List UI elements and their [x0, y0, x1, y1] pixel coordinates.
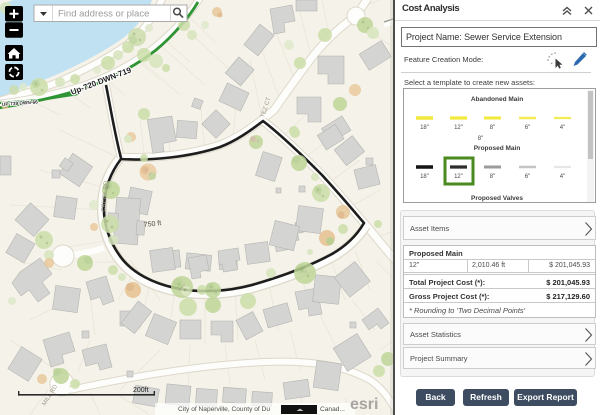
svg-text:200ft: 200ft — [133, 387, 149, 394]
svg-text:Canad...: Canad... — [320, 406, 345, 413]
svg-text:Find address or place: Find address or place — [58, 9, 149, 20]
svg-text:City of Naperville, County of: City of Naperville, County of Du — [178, 406, 270, 413]
svg-text:esri: esri — [350, 396, 378, 413]
